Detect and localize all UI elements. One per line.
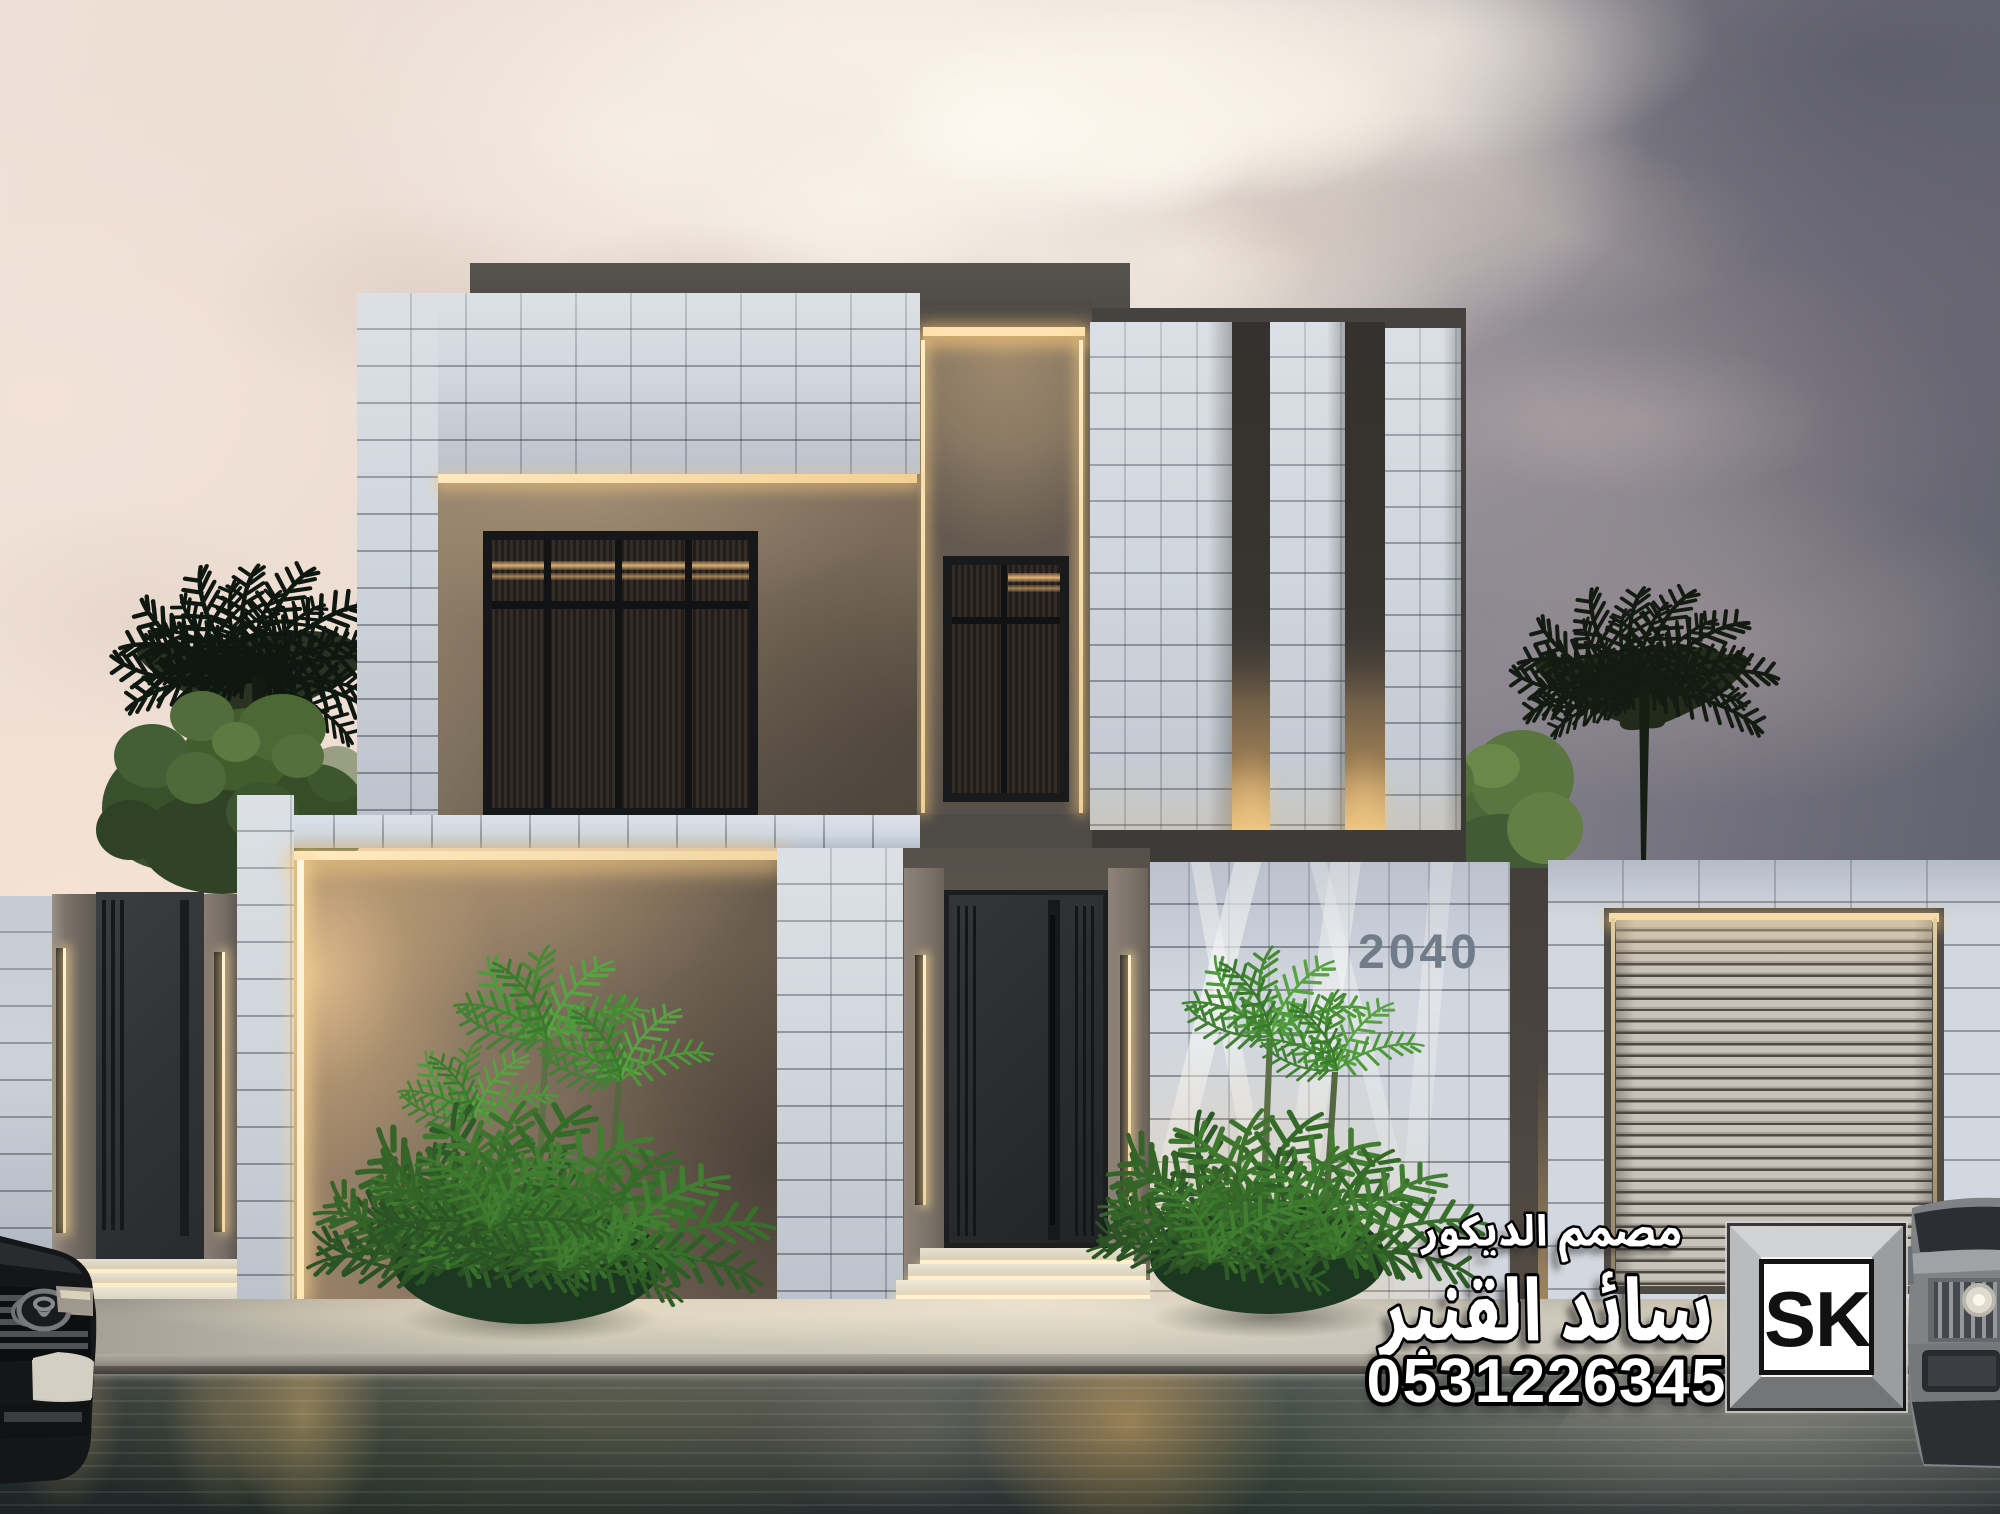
svg-text:0531226345: 0531226345 [1367,1347,1726,1416]
